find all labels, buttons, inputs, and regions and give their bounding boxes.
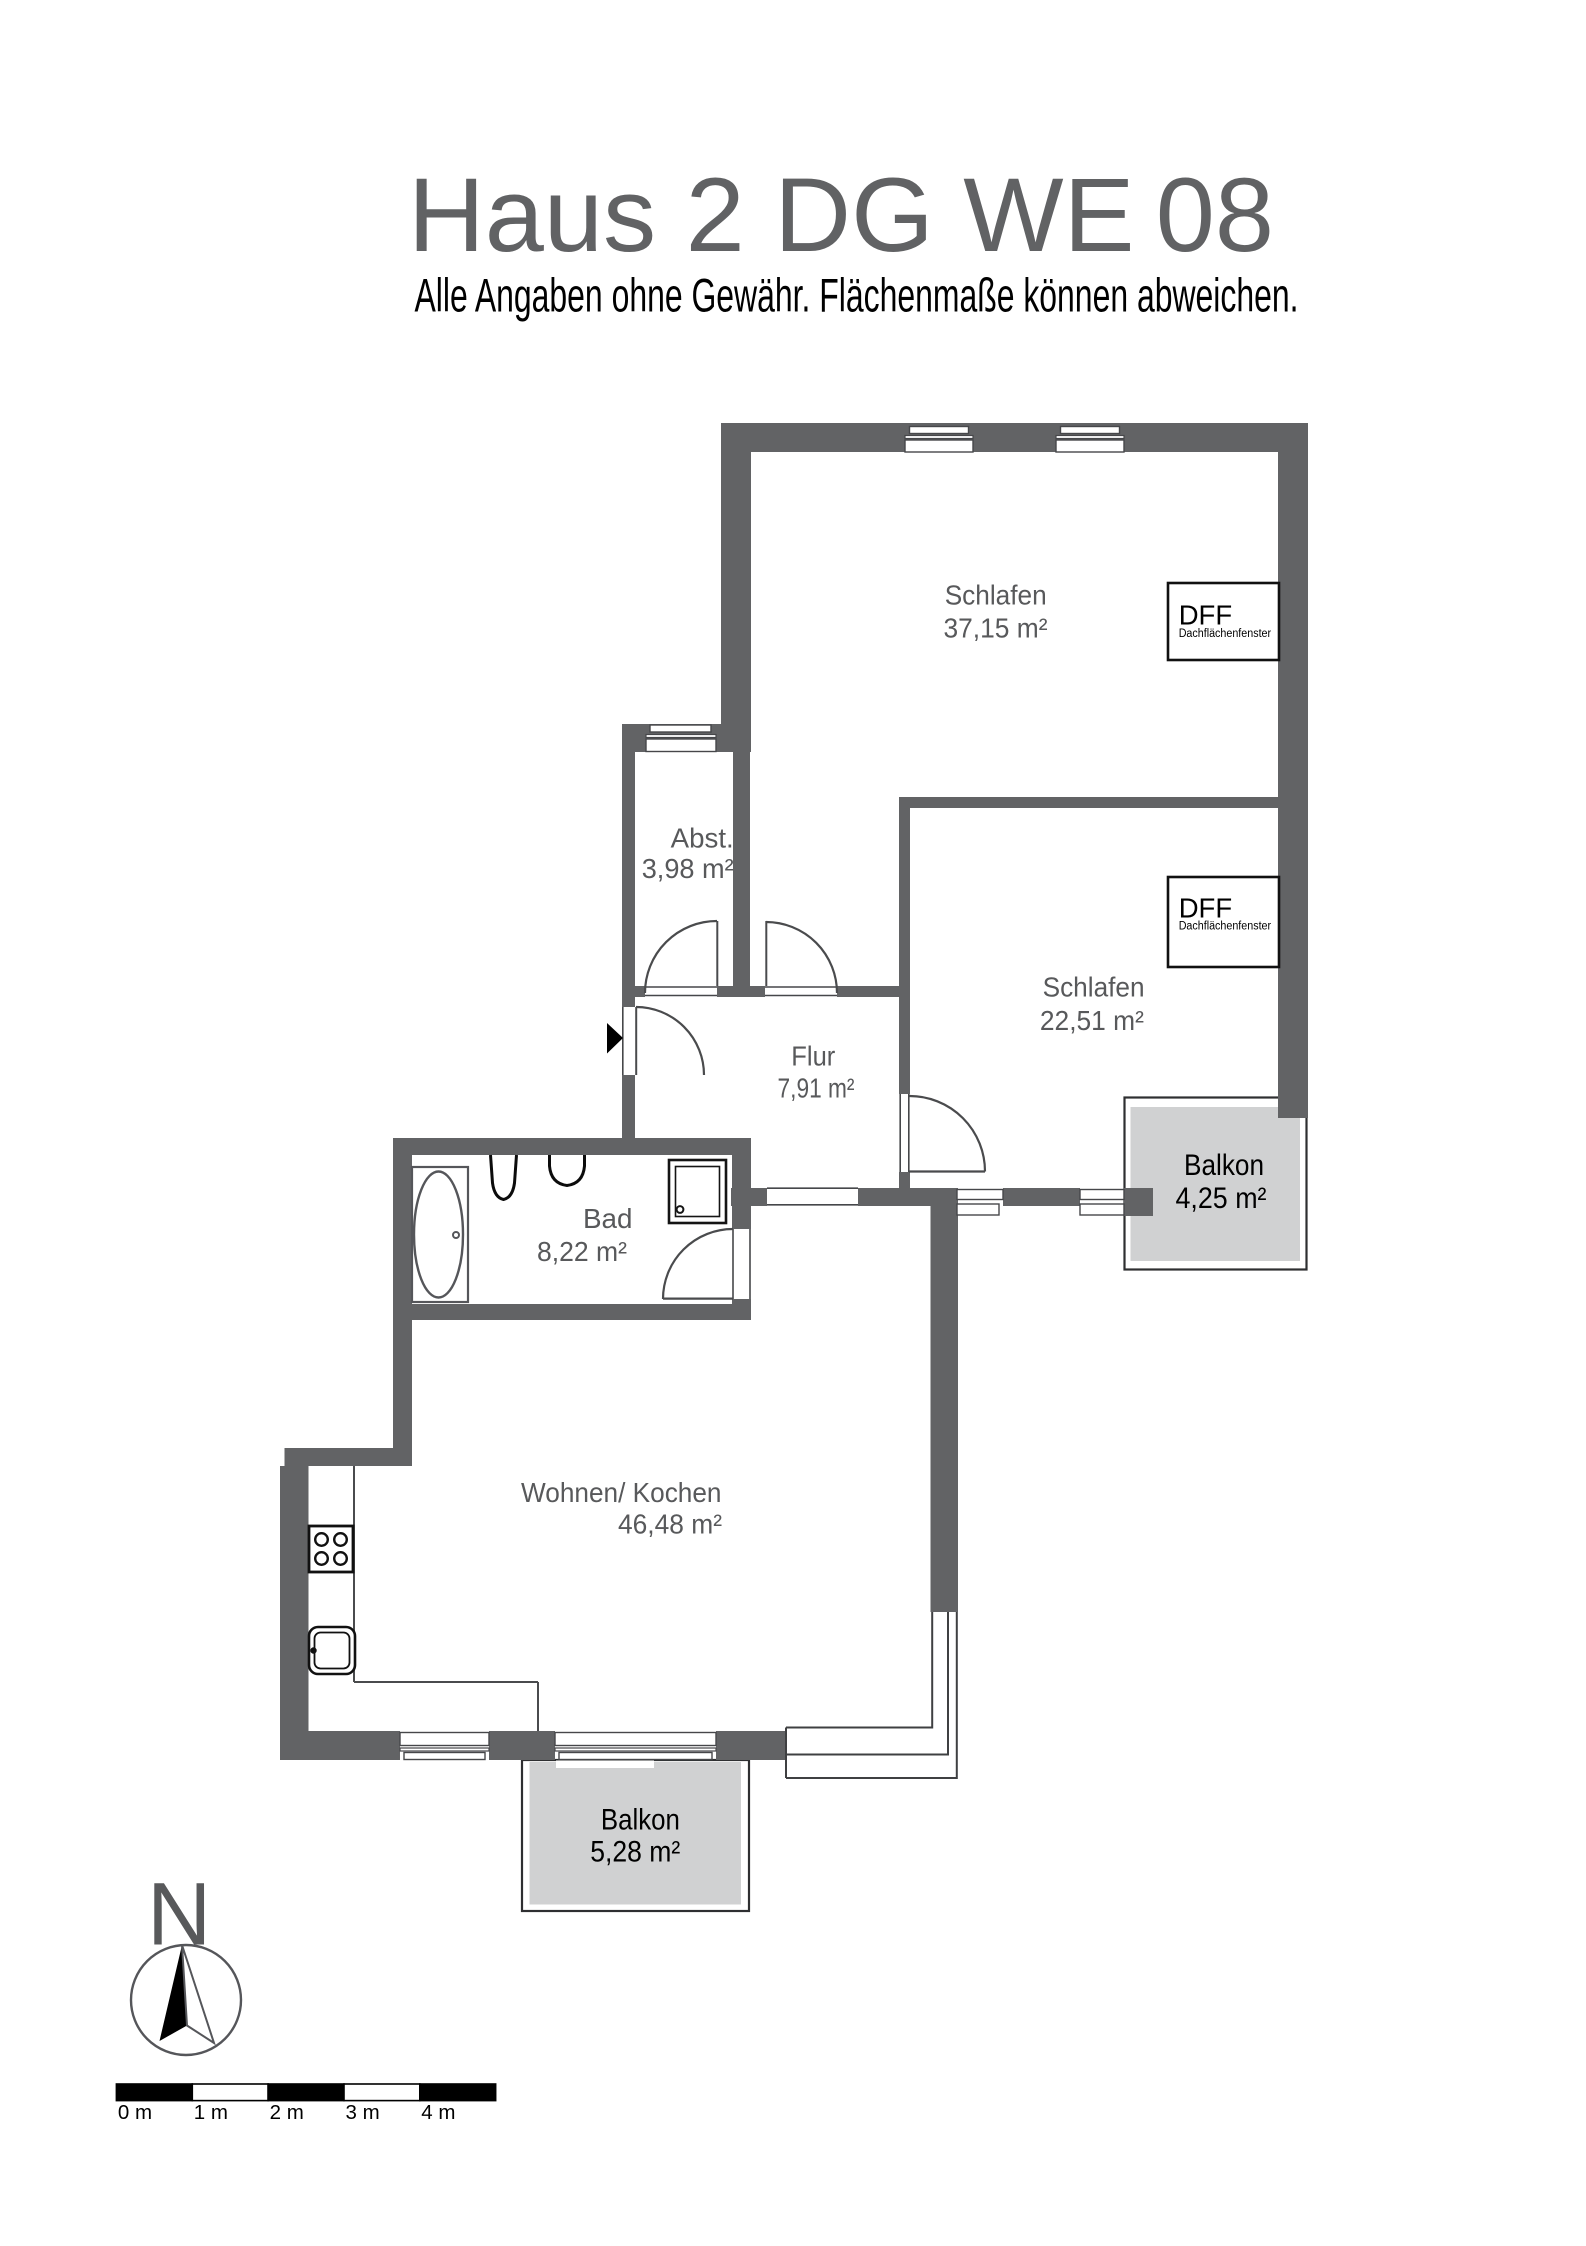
- svg-text:46,48 m²: 46,48 m²: [618, 1508, 722, 1539]
- svg-text:0 m: 0 m: [118, 2101, 152, 2124]
- svg-text:Abst.: Abst.: [671, 823, 734, 854]
- svg-text:Balkon: Balkon: [601, 1803, 680, 1836]
- svg-text:Haus 2 DG WE 08: Haus 2 DG WE 08: [408, 157, 1274, 274]
- svg-text:1 m: 1 m: [194, 2101, 228, 2124]
- svg-text:4 m: 4 m: [421, 2101, 455, 2124]
- svg-text:Balkon: Balkon: [1184, 1149, 1264, 1182]
- svg-text:22,51 m²: 22,51 m²: [1040, 1005, 1144, 1036]
- svg-text:3 m: 3 m: [346, 2101, 380, 2124]
- svg-text:DFF: DFF: [1179, 600, 1232, 631]
- svg-text:Schlafen: Schlafen: [1043, 971, 1145, 1002]
- svg-text:Alle Angaben ohne Gewähr. Fläc: Alle Angaben ohne Gewähr. Flächenmaße kö…: [415, 270, 1299, 323]
- svg-text:5,28 m²: 5,28 m²: [590, 1836, 680, 1869]
- svg-text:Dachflächenfenster: Dachflächenfenster: [1179, 921, 1272, 933]
- svg-text:Bad: Bad: [583, 1203, 633, 1234]
- svg-text:37,15 m²: 37,15 m²: [944, 613, 1048, 644]
- svg-text:4,25 m²: 4,25 m²: [1176, 1182, 1267, 1215]
- svg-text:Schlafen: Schlafen: [945, 579, 1047, 610]
- svg-text:Wohnen/ Kochen: Wohnen/ Kochen: [521, 1477, 722, 1508]
- svg-text:Flur: Flur: [791, 1040, 835, 1071]
- svg-text:2 m: 2 m: [270, 2101, 304, 2124]
- svg-text:3,98 m²: 3,98 m²: [642, 853, 734, 884]
- svg-text:8,22 m²: 8,22 m²: [537, 1236, 627, 1267]
- svg-text:Dachflächenfenster: Dachflächenfenster: [1179, 628, 1272, 640]
- svg-text:7,91 m²: 7,91 m²: [778, 1072, 855, 1103]
- svg-text:DFF: DFF: [1179, 893, 1232, 924]
